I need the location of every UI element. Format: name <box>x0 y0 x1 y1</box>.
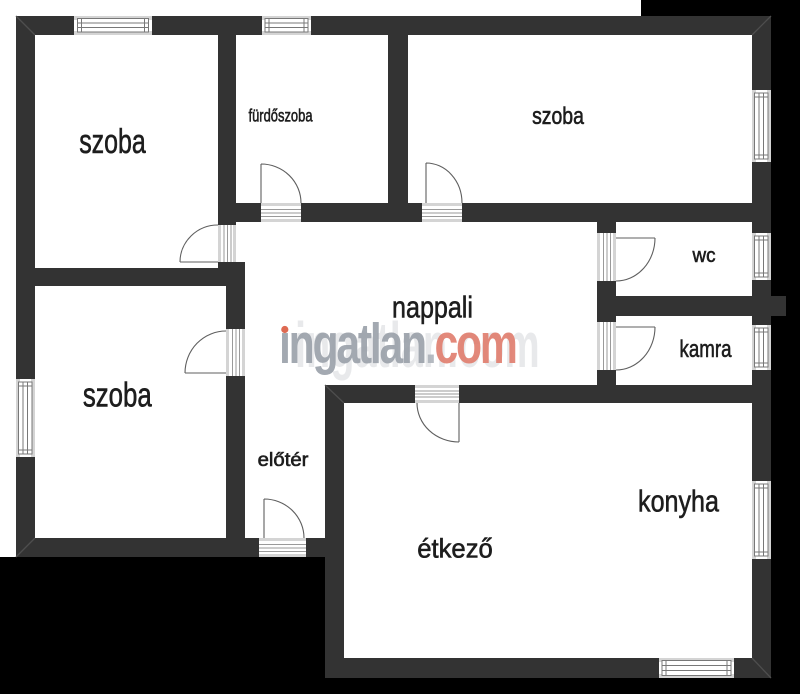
svg-text:előtér: előtér <box>258 450 309 471</box>
svg-text:konyha: konyha <box>638 483 719 518</box>
svg-text:nappali: nappali <box>392 289 473 324</box>
svg-text:szoba: szoba <box>83 377 152 414</box>
svg-text:szoba: szoba <box>79 123 146 161</box>
svg-text:fürdőszoba: fürdőszoba <box>248 107 312 127</box>
svg-text:kamra: kamra <box>680 336 732 363</box>
svg-text:wc: wc <box>692 244 716 267</box>
svg-text:szoba: szoba <box>532 102 585 129</box>
svg-text:étkező: étkező <box>417 533 493 564</box>
